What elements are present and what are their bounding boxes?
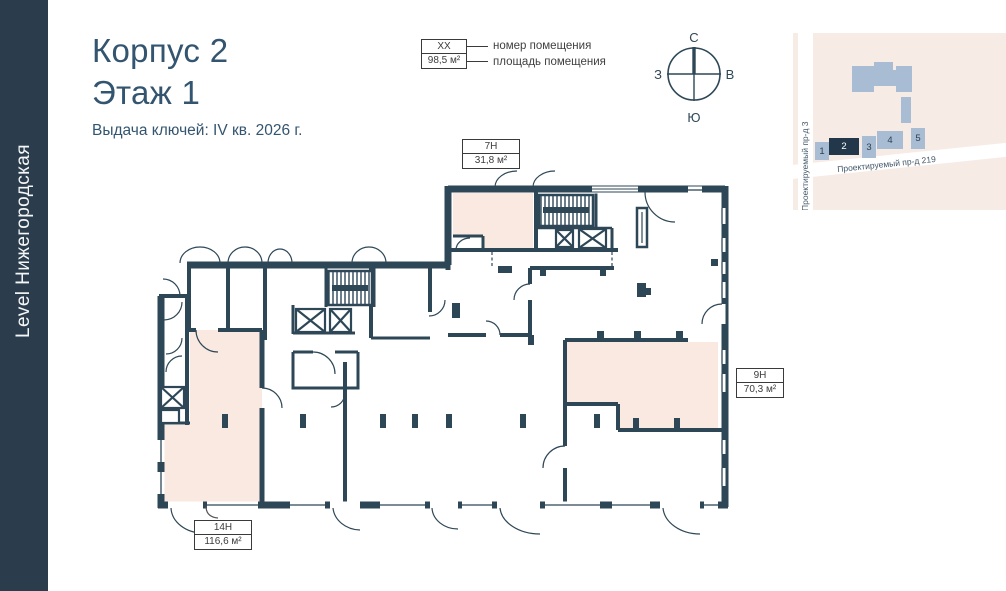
minimap-building-4[interactable]: 4 [877,131,903,149]
room-number: 14Н [195,521,251,535]
minimap-building-shape [901,97,911,123]
minimap-building-shape [896,66,912,92]
street-vertical-label: Проектируемый пр-д 3 [800,121,810,210]
building-number: 5 [915,133,920,144]
compass-north-label: С [689,30,698,45]
room-label-9n[interactable]: 9Н 70,3 м² [736,368,784,398]
page: С Ю З В Level Нижегородская Корпус 2 Эта… [0,0,1006,591]
dashed-lines [492,252,612,268]
building-number: 4 [887,135,892,146]
minimap-building-5[interactable]: 5 [911,128,925,149]
legend-number-caption: номер помещения [493,40,591,52]
compass-south-label: Ю [687,110,700,125]
legend-sample-number: XX [422,40,466,54]
minimap-building-3[interactable]: 3 [862,136,876,158]
legend-area-caption: площадь помещения [493,56,606,68]
room-7n-area[interactable] [453,193,533,248]
compass-east-label: В [726,67,735,82]
page-title-floor: Этаж 1 [92,74,200,112]
legend-sample-area: 98,5 м² [422,54,466,68]
room-number: 7Н [463,140,519,154]
duct [637,208,647,247]
room-label-14n[interactable]: 14Н 116,6 м² [194,520,252,550]
brand-logo-text: Level Нижегородская [13,144,35,338]
highlighted-rooms[interactable] [163,193,718,505]
legend-leader-line [467,61,488,62]
building-number: 3 [866,142,871,153]
room-area: 70,3 м² [737,383,783,397]
room-area: 116,6 м² [195,535,251,549]
room-number: 9Н [737,369,783,383]
compass-west-label: З [654,67,662,82]
room-area: 31,8 м² [463,154,519,168]
compass-icon: С Ю З В [654,30,734,125]
legend-leader-line [467,46,488,47]
keys-handover-note: Выдача ключей: IV кв. 2026 г. [92,122,303,140]
minimap-building-1[interactable]: 1 [815,142,829,160]
site-minimap: Проектируемый пр-д 3 Проектируемый пр-д … [793,33,1006,210]
building-number: 2 [841,141,846,152]
room-label-7n[interactable]: 7Н 31,8 м² [462,139,520,169]
room-9n-area[interactable] [565,342,718,430]
minimap-building-shape [874,62,893,74]
minimap-building-2-active[interactable]: 2 [829,138,859,155]
brand-sidebar: Level Нижегородская [0,0,48,591]
page-title-building: Корпус 2 [92,32,228,70]
legend-sample-box: XX 98,5 м² [421,39,467,69]
building-number: 1 [819,146,824,157]
